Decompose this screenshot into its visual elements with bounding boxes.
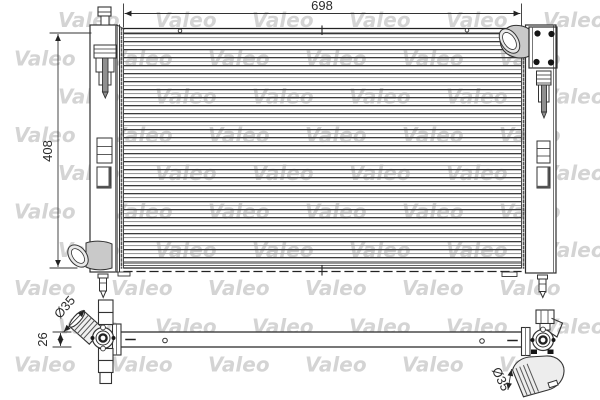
flange-foot-bolt xyxy=(531,350,537,355)
dimension-overall-height-label: 408 xyxy=(40,140,55,162)
valeo-watermark: Valeo xyxy=(14,353,76,377)
core-foot-right xyxy=(502,272,517,277)
flange-bolt xyxy=(533,59,539,65)
left-tank-bracket-lower xyxy=(97,167,111,188)
outlet-pipe-front xyxy=(64,241,112,271)
mounting-hole xyxy=(178,29,182,33)
drain-plug-left xyxy=(98,274,108,298)
mounting-hole xyxy=(465,28,469,32)
radiator-core xyxy=(117,25,526,275)
tube-hole xyxy=(480,339,485,344)
radiator-bottom-view: Ø35 26 xyxy=(35,293,564,397)
dimension-tube-thickness-label: 26 xyxy=(35,332,50,346)
radiator-technical-drawing: ValeoValeoValeoValeoValeoValeoValeoValeo… xyxy=(0,0,600,400)
valeo-watermark: Valeo xyxy=(111,353,173,377)
dimension-core-width-label: 698 xyxy=(311,0,333,13)
tube-profile xyxy=(120,332,522,347)
flange-bolt xyxy=(548,31,554,37)
tube-hole xyxy=(163,338,168,343)
drawing-canvas: ValeoValeoValeoValeoValeoValeoValeoValeo… xyxy=(0,0,600,400)
flange-bolt xyxy=(548,59,554,65)
valeo-watermark: Valeo xyxy=(305,353,367,377)
flange-foot-bolt xyxy=(548,350,554,355)
radiator-front-view: 698 408 xyxy=(40,0,557,298)
left-tank-bracket-upper xyxy=(97,138,112,163)
valeo-watermark: Valeo xyxy=(305,276,367,300)
right-tank-bracket-lower xyxy=(537,167,550,188)
valeo-watermark: Valeo xyxy=(208,276,270,300)
valeo-watermark: Valeo xyxy=(14,46,76,70)
valeo-watermark: Valeo xyxy=(402,276,464,300)
valeo-watermark: Valeo xyxy=(111,276,173,300)
right-tank-bracket-upper xyxy=(537,141,550,163)
valeo-watermark: Valeo xyxy=(402,353,464,377)
valeo-watermark: Valeo xyxy=(14,200,76,224)
flange-bolt xyxy=(534,30,540,36)
valeo-watermark: Valeo xyxy=(499,276,561,300)
valeo-watermark: Valeo xyxy=(208,353,270,377)
core-foot-left xyxy=(118,272,130,276)
